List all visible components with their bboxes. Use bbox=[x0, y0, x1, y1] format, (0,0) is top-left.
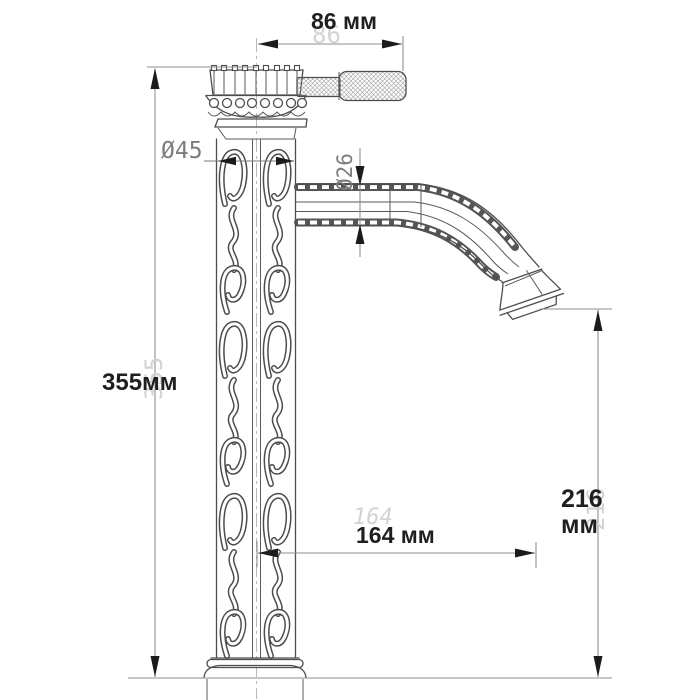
arrow-left-icon bbox=[258, 40, 278, 49]
technical-drawing: 86 86 мм 355 355мм Ø45 Ø26 216 216 мм bbox=[0, 0, 700, 700]
dimension-spout-height-216: 216 216 мм bbox=[540, 309, 612, 677]
dimension-spout-reach-164: 164 164 мм bbox=[257, 505, 536, 568]
faucet-base bbox=[204, 658, 306, 700]
faucet-spout bbox=[296, 185, 566, 323]
arrow-up-icon bbox=[594, 310, 603, 331]
arrow-down-icon bbox=[594, 656, 603, 677]
faucet-column bbox=[217, 139, 296, 658]
faucet-capital bbox=[206, 66, 307, 140]
spout-height-unit: мм bbox=[561, 511, 598, 539]
arrow-up-icon bbox=[356, 224, 365, 244]
arrow-right-icon bbox=[515, 549, 535, 558]
column-diameter-label: Ø45 bbox=[161, 138, 203, 164]
arrow-up-icon bbox=[151, 68, 160, 89]
drawing-canvas: 86 86 мм 355 355мм Ø45 Ø26 216 216 мм bbox=[0, 0, 700, 700]
height-label: 355мм bbox=[102, 369, 178, 396]
spout-nozzle bbox=[489, 261, 566, 323]
dimension-width-86: 86 86 мм bbox=[258, 8, 403, 71]
width-label: 86 мм bbox=[311, 8, 377, 34]
spout-height-value: 216 bbox=[561, 485, 603, 513]
arrow-down-icon bbox=[151, 656, 160, 677]
arrow-right-icon bbox=[382, 40, 402, 49]
spout-diameter-label: Ø26 bbox=[333, 153, 357, 191]
spout-reach-label: 164 мм bbox=[356, 522, 435, 548]
faucet-handle bbox=[297, 72, 406, 101]
